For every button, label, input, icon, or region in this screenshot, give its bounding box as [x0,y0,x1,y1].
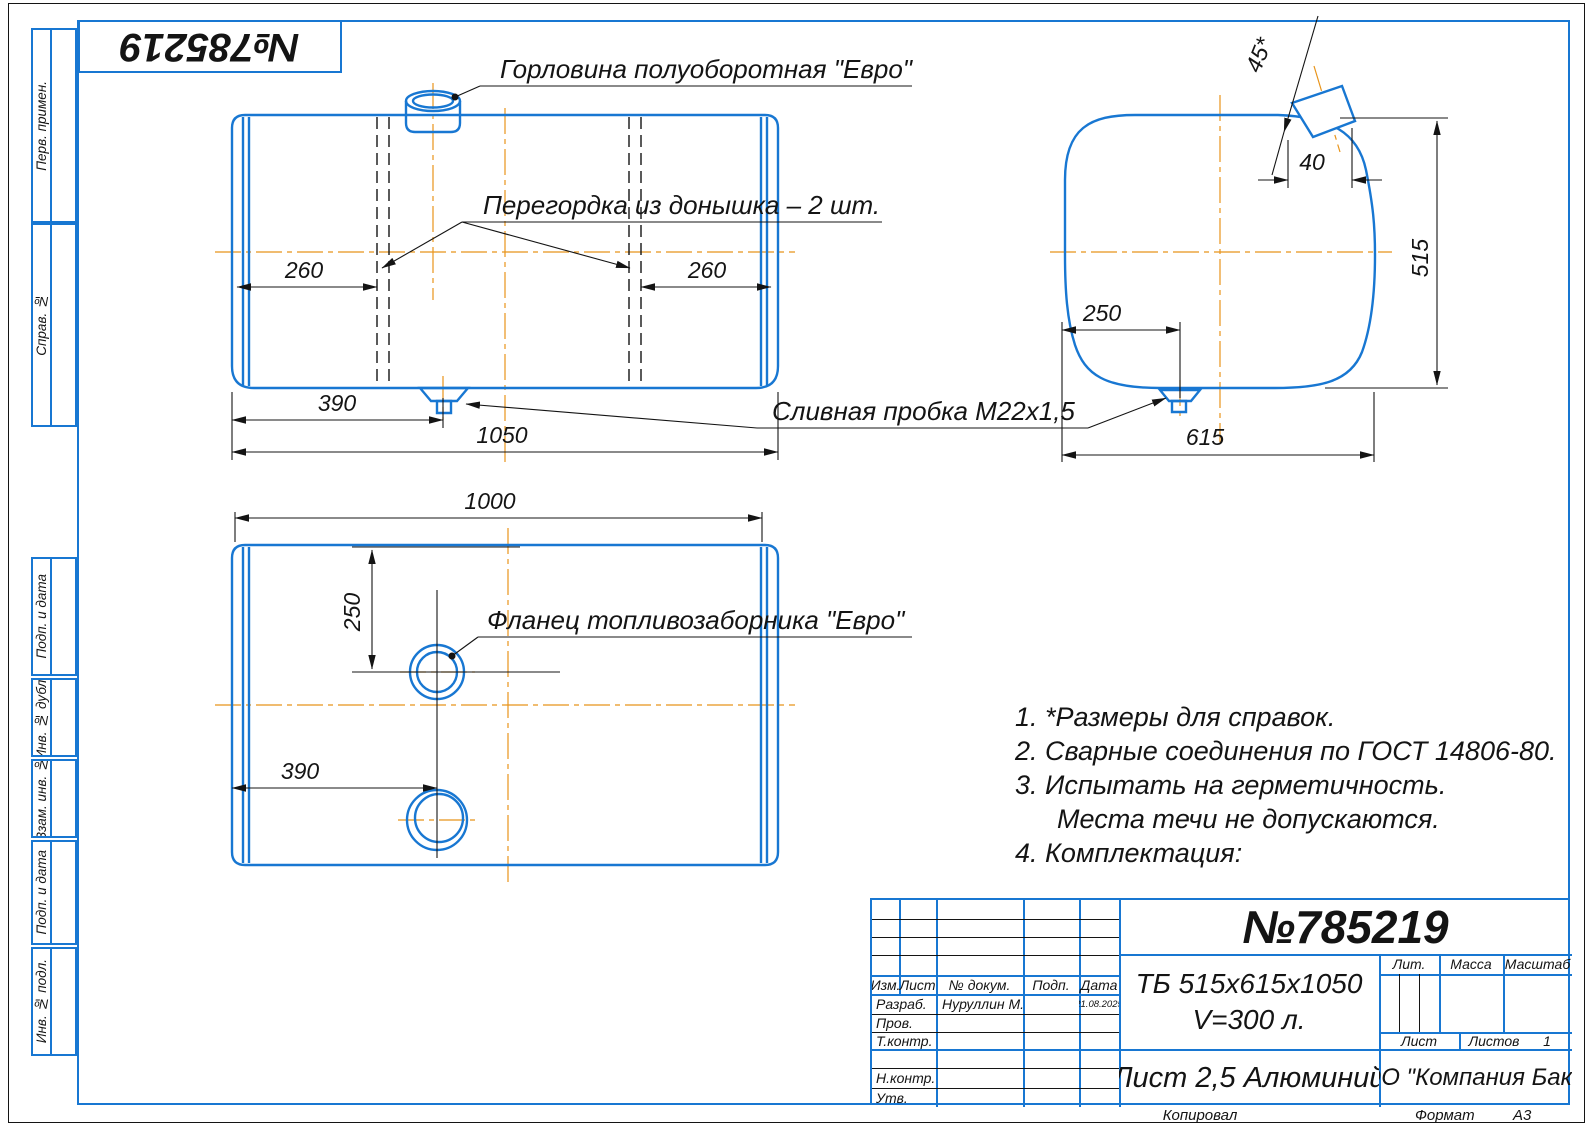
tb-header-data: Дата [1079,975,1119,994]
tb-row-utv: Утв. [872,1088,936,1107]
tb-material: Лист 2,5 Алюминий [1119,1049,1379,1107]
note-line-3: 3. Испытать на герметичность. [1015,768,1590,802]
tb-company: ООО "Компания Бакор" [1379,1049,1572,1107]
tb-row-nkontr: Н.контр. [872,1068,936,1088]
tb-razrab-name: Нуруллин М.И. [938,994,1023,1014]
tb-razrab-date: 21.08.2025 [1079,994,1119,1014]
dim-bottom-250: 250 [339,593,365,633]
dim-side-40: 40 [1299,149,1325,175]
tb-doc-number: №785219 [1119,900,1572,954]
dim-front-1050: 1050 [476,422,527,448]
tb-header-izm: Изм. [872,975,899,994]
callout-flange: Фланец топливозаборника "Евро" [487,605,906,635]
tb-row-prov: Пров. [872,1014,936,1032]
tb-header-podp: Подп. [1023,975,1079,994]
dim-front-260-right: 260 [687,257,727,283]
dim-bottom-390: 390 [281,758,320,784]
note-line-2: 2. Сварные соединения по ГОСТ 14806-80. [1015,734,1590,768]
note-line-5: 4. Комплектация: [1015,836,1590,870]
tb-row-tkontr: Т.контр. [872,1032,936,1049]
dim-side-250: 250 [1082,300,1122,326]
tb-designation-line: ТБ 515х615х1050 [1136,966,1363,1002]
dim-front-260-left: 260 [284,257,324,283]
footer-format-label: Формат [1415,1107,1475,1124]
leader-dot-neck [452,94,459,101]
tb-lit-header: Лит. [1379,954,1439,974]
tb-listov-label: Листов [1459,1032,1529,1050]
tb-listov-value: 1 [1532,1032,1562,1050]
tb-header-list: Лист [899,975,936,994]
title-block: Изм. Лист № докум. Подп. Дата Разраб. Ну… [870,898,1570,1105]
technical-notes: 1. *Размеры для справок. 2. Сварные соед… [1015,700,1590,870]
dim-front-390: 390 [318,390,357,416]
tb-masshtab-header: Масштаб [1503,954,1572,974]
dim-bottom-1000: 1000 [464,488,515,514]
dim-side-515: 515 [1407,239,1433,278]
dim-side-45: 45* [1240,33,1277,76]
bottom-view: 1000 250 390 [215,488,795,882]
footer-copied: Копировал [1120,1107,1280,1124]
tb-volume: V=300 л. [1192,1002,1305,1038]
callout-neck: Горловина полуоборотная "Евро" [500,54,914,84]
tb-designation: ТБ 515х615х1050 V=300 л. [1119,954,1379,1049]
footer-format-value: А3 [1513,1107,1531,1124]
dim-side-615: 615 [1186,424,1225,450]
tb-massa-header: Масса [1439,954,1503,974]
tb-row-razrab: Разраб. [872,994,936,1014]
callout-drain-plug: Сливная пробка М22х1,5 [772,396,1075,426]
tb-header-doc: № докум. [936,975,1023,994]
side-view: 45* 40 515 250 615 [1050,16,1448,462]
note-line-4: Места течи не допускаются. [1015,802,1590,836]
callout-baffle: Перегордка из донышка – 2 шт. [483,190,880,220]
drawing-sheet: №785219 Перв. примен. Справ. № Подп. и д… [0,0,1592,1127]
callouts: Горловина полуоборотная "Евро" Перегордк… [382,54,1166,660]
leader-dot-flange [449,653,456,660]
tb-list-label: Лист [1379,1032,1459,1050]
note-line-1: 1. *Размеры для справок. [1015,700,1590,734]
